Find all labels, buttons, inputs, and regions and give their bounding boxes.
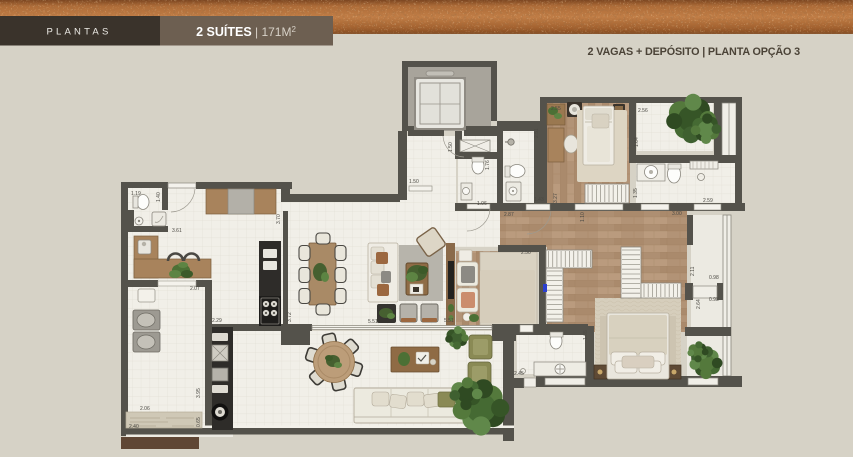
svg-text:1.10: 1.10 xyxy=(580,212,586,222)
svg-text:3.72: 3.72 xyxy=(287,312,293,322)
svg-text:1.64: 1.64 xyxy=(634,137,640,147)
svg-text:5.51: 5.51 xyxy=(444,318,454,324)
svg-text:0.65: 0.65 xyxy=(196,417,202,427)
svg-text:3.61: 3.61 xyxy=(172,228,182,234)
svg-text:2.40: 2.40 xyxy=(129,424,139,430)
svg-text:2 VAGAS + DEPÓSITO | PLANTA OP: 2 VAGAS + DEPÓSITO | PLANTA OPÇÃO 3 xyxy=(588,45,801,58)
svg-text:1.19: 1.19 xyxy=(131,191,141,197)
svg-text:1.50: 1.50 xyxy=(448,142,454,152)
svg-text:0.98: 0.98 xyxy=(709,297,719,303)
svg-text:2.64: 2.64 xyxy=(696,299,702,309)
svg-text:2.50: 2.50 xyxy=(521,250,531,256)
svg-text:2.56: 2.56 xyxy=(638,108,648,114)
svg-text:3.70: 3.70 xyxy=(276,214,282,224)
svg-text:1.40: 1.40 xyxy=(156,192,162,202)
svg-text:2.51: 2.51 xyxy=(534,128,540,138)
svg-text:3.95: 3.95 xyxy=(196,388,202,398)
svg-text:PLANTAS: PLANTAS xyxy=(47,27,112,38)
svg-text:1.50: 1.50 xyxy=(409,179,419,185)
svg-text:5.51: 5.51 xyxy=(368,319,378,325)
svg-text:2.55: 2.55 xyxy=(551,106,561,112)
svg-text:2.11: 2.11 xyxy=(690,266,696,276)
svg-text:3.27: 3.27 xyxy=(553,193,559,203)
svg-text:1.06: 1.06 xyxy=(477,201,487,207)
svg-text:2.07: 2.07 xyxy=(190,286,200,292)
svg-text:2.45: 2.45 xyxy=(514,371,524,377)
svg-text:3.00: 3.00 xyxy=(672,211,682,217)
svg-text:1.76: 1.76 xyxy=(485,160,491,170)
svg-text:2.87: 2.87 xyxy=(504,212,514,218)
svg-text:2.06: 2.06 xyxy=(140,406,150,412)
svg-text:1.35: 1.35 xyxy=(633,188,639,198)
svg-text:0.98: 0.98 xyxy=(709,275,719,281)
svg-text:2.59: 2.59 xyxy=(703,198,713,204)
svg-text:1.43: 1.43 xyxy=(534,197,544,203)
svg-text:1.65: 1.65 xyxy=(583,330,589,340)
svg-text:2 SUÍTES | 171M2: 2 SUÍTES | 171M2 xyxy=(196,24,296,39)
svg-text:2.29: 2.29 xyxy=(212,318,222,324)
